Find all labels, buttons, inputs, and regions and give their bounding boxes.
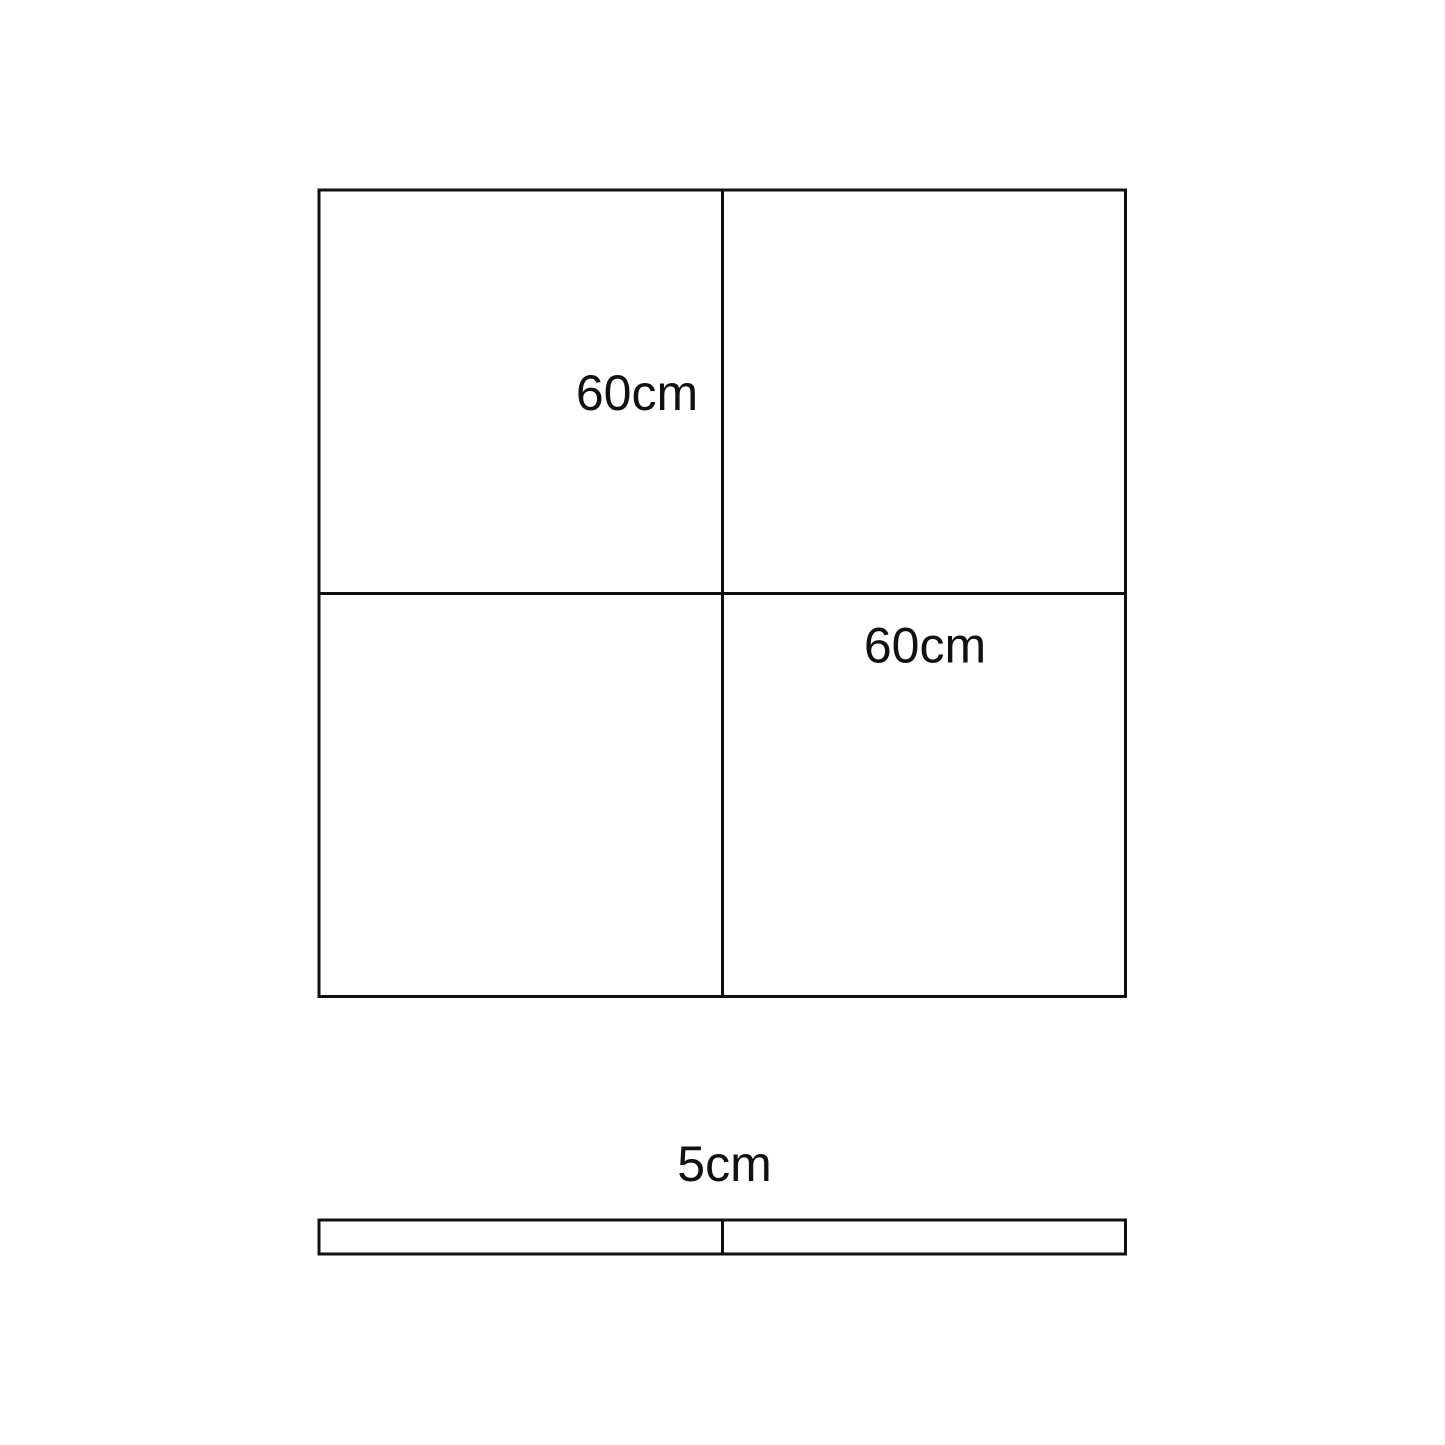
svg-text:60cm: 60cm — [864, 618, 986, 674]
svg-text:5cm: 5cm — [677, 1136, 771, 1192]
svg-text:60cm: 60cm — [576, 365, 698, 421]
